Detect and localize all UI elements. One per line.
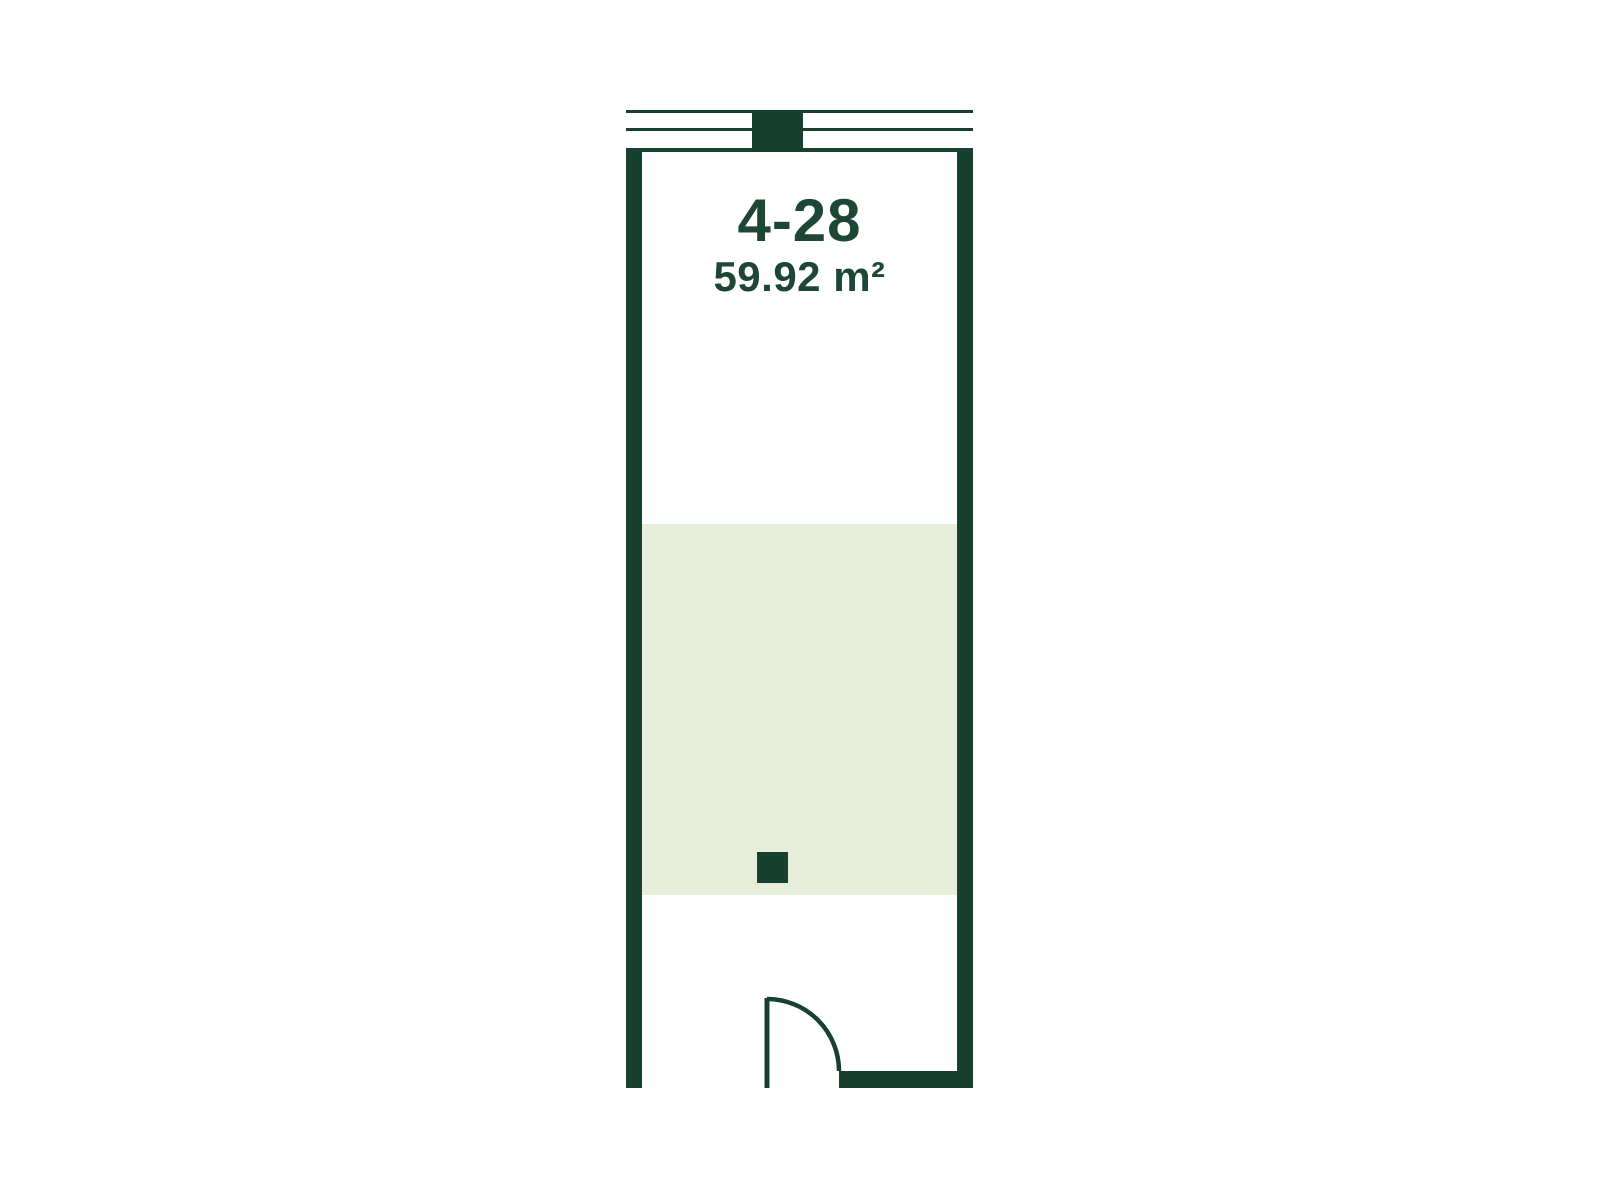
unit-area-label: 59.92 m² bbox=[626, 256, 973, 298]
floorplan-canvas: 4-28 59.92 m² bbox=[0, 0, 1600, 1200]
unit-number-label: 4-28 bbox=[626, 193, 973, 249]
door-swing bbox=[0, 0, 1600, 1200]
door-arc bbox=[767, 999, 839, 1071]
